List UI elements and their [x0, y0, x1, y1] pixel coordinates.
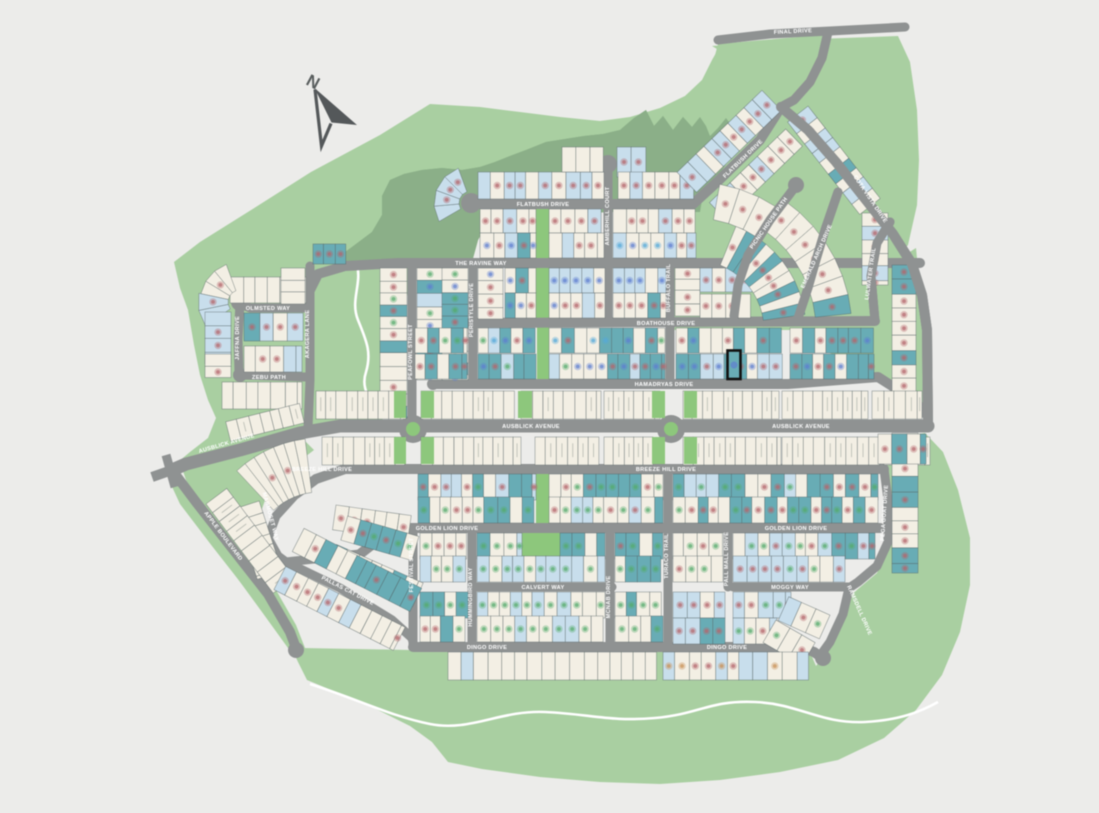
- svg-text:CALVERT WAY: CALVERT WAY: [521, 585, 564, 591]
- svg-text:PEAFOWL STREET: PEAFOWL STREET: [408, 324, 414, 380]
- svg-text:TURACO TRAIL: TURACO TRAIL: [664, 533, 670, 579]
- svg-text:THE RAVINE WAY: THE RAVINE WAY: [455, 261, 506, 267]
- svg-text:OLMSTED WAY: OLMSTED WAY: [246, 306, 290, 312]
- svg-text:MOGGY WAY: MOGGY WAY: [771, 585, 809, 591]
- svg-text:BREEZE HILL DRIVE: BREEZE HILL DRIVE: [636, 467, 696, 473]
- svg-text:GOLDEN LION DRIVE: GOLDEN LION DRIVE: [416, 526, 479, 532]
- svg-text:HUMMINGBIRD WAY: HUMMINGBIRD WAY: [468, 567, 474, 626]
- svg-text:GOLDEN LION DRIVE: GOLDEN LION DRIVE: [765, 526, 828, 532]
- svg-text:PERISTYLE DRIVE: PERISTYLE DRIVE: [469, 283, 475, 337]
- svg-text:ZEBU PATH: ZEBU PATH: [252, 375, 286, 381]
- svg-text:AMBERHILL COURT: AMBERHILL COURT: [605, 186, 611, 245]
- svg-text:AKAGERA LANE: AKAGERA LANE: [305, 310, 311, 358]
- svg-text:JAFFNA DRIVE: JAFFNA DRIVE: [235, 316, 241, 360]
- svg-text:AUSBLICK AVENUE: AUSBLICK AVENUE: [772, 424, 830, 430]
- svg-text:FLATBUSH DRIVE: FLATBUSH DRIVE: [517, 202, 570, 208]
- svg-text:MCNAB DRIVE: MCNAB DRIVE: [606, 576, 612, 619]
- svg-text:FESTIVAL STREET: FESTIVAL STREET: [409, 537, 415, 592]
- svg-text:HAMADRYAS DRIVE: HAMADRYAS DRIVE: [635, 382, 694, 388]
- svg-text:BOATHOUSE DRIVE: BOATHOUSE DRIVE: [637, 321, 695, 327]
- svg-text:BREEZE HILL DRIVE: BREEZE HILL DRIVE: [292, 467, 352, 473]
- svg-text:AUSBLICK AVENUE: AUSBLICK AVENUE: [502, 424, 560, 430]
- svg-text:DINGO DRIVE: DINGO DRIVE: [707, 645, 747, 651]
- svg-text:PALL MALL DRIVE: PALL MALL DRIVE: [724, 532, 730, 586]
- svg-text:DINGO DRIVE: DINGO DRIVE: [467, 645, 507, 651]
- svg-text:BUFFALO TRAIL: BUFFALO TRAIL: [666, 264, 672, 313]
